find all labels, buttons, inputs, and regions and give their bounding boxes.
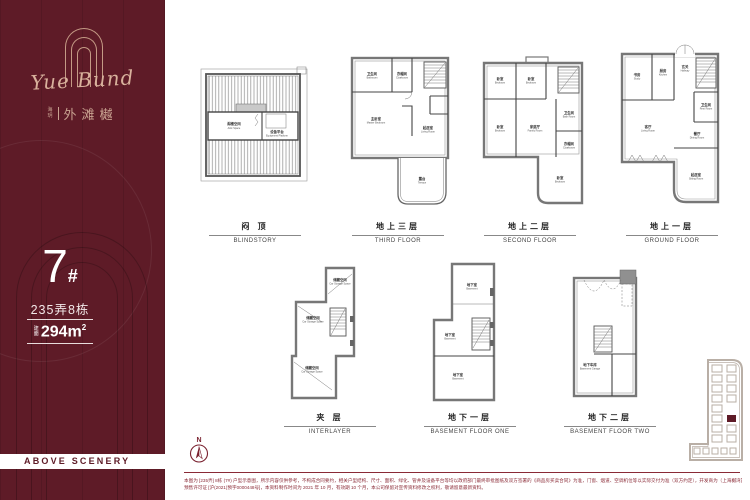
room-label-en: Basement [452,378,464,381]
floor-label-interlayer: 夹 层 INTERLAYER [270,412,390,435]
wall-nib [350,340,354,346]
plan-basement-one-drawing: 地下室 Basement 地下室 Basement 地下室 Basement [426,260,502,407]
room-label: 卧室 [557,175,564,180]
above-scenery-banner: ABOVE SCENERY [0,454,165,469]
floor-label-en: THIRD FLOOR [338,238,458,244]
room-label-en: Bedroom [495,130,505,133]
room-label: 客厅 [644,124,652,129]
room-label-en: Bedroom [526,82,536,85]
wall-nib [490,288,494,296]
unit-address: 235弄8栋 [0,299,120,318]
sidebar: Yue Bund 海 玥 外滩樾 7# 235弄8栋 建 面 294m2 ABO… [0,0,165,500]
brand-prefix-bottom: 玥 [47,114,52,120]
floor-label-en: BASEMENT FLOOR ONE [410,429,530,435]
room-label: 厨房 [660,68,667,73]
unit-number: 7# [0,242,120,290]
room-label: 储藏空间 [306,315,320,320]
room-label: 主卧室 [371,116,382,121]
label-divider [352,235,444,236]
site-key-plan [684,356,748,468]
floor-label-en: INTERLAYER [270,429,390,435]
room-label: 卫生间 [367,71,378,76]
floor-label-cn: 地下一层 [410,412,530,423]
room-label: 地下车库 [583,362,597,367]
room-label: 储藏空间 [305,365,319,370]
highlighted-building [727,415,736,422]
floor-label-en: BASEMENT FLOOR TWO [550,429,670,435]
room-label: 衣帽间 [397,71,408,76]
room-label: 衣帽间 [564,141,575,146]
compass-needle [199,447,202,459]
label-divider [484,235,576,236]
area-box: 建 面 294m2 [27,319,93,344]
floor-label-second: 地上二层 SECOND FLOOR [470,221,590,244]
room-label-en: Rest Room [700,108,713,111]
brand-name-text: 外滩樾 [64,104,118,123]
shaft-block [620,270,636,284]
brand-prefix: 海 玥 [47,108,52,119]
plan-interlayer-drawing: 储藏空间 Car Storage Space 储藏空间 Car Storage … [288,264,362,404]
floor-label-ground: 地上一层 GROUND FLOOR [612,221,732,244]
dormer [236,104,266,112]
floor-label-en: GROUND FLOOR [612,238,732,244]
floor-label-cn: 地上二层 [470,221,590,232]
room-label: 家庭厅 [530,124,541,129]
area-number: 294m [41,323,82,340]
room-label-en: Family Room [528,130,543,133]
disclaimer: 本图为 [235弄] 8栋 (7#) 户型示意图，所示内容仅供参考，不构成合同要… [184,477,742,491]
floor-label-cn: 地上一层 [612,221,732,232]
room-label: 卧室 [497,124,504,129]
room-label: 卫生间 [564,110,575,115]
room-label-en: Dining Room [690,137,704,140]
room-label: 书房 [634,72,641,77]
room-label: 起居室 [690,172,702,177]
floor-label-cn: 地上三层 [338,221,458,232]
area-exponent: 2 [82,323,86,332]
room-label: 地下室 [453,372,464,377]
room-label-en: Master Bedroom [367,122,385,125]
room-label: 卧室 [528,76,535,81]
floor-label-basement-two: 地下二层 BASEMENT FLOOR TWO [550,412,670,435]
label-divider [626,235,718,236]
area-prefix: 建 面 [34,327,39,337]
north-compass-icon: N [186,434,212,464]
room-label-en: Living Room [421,131,435,134]
floorplan-brochure: Yue Bund 海 玥 外滩樾 7# 235弄8栋 建 面 294m2 ABO… [0,0,750,500]
room-label: 设备平台 [270,129,284,134]
room-label: 卧室 [497,76,504,81]
wall-nib [350,316,354,322]
unit-number-suffix: # [68,266,78,286]
room-label-en: Study [634,78,641,81]
room-label-en: Basement [466,288,478,291]
disclaimer-line-2: 预售许可证 [沪(2021)预字0000448号]，本资料制作时间为 2021 … [184,484,742,491]
room-label-en: Attic Space [228,127,241,130]
room-label: 餐厅 [693,131,701,136]
roof-hatch-bottom [208,140,298,174]
label-divider [209,235,301,236]
brand-script-text: Yue Bund [0,64,165,97]
room-label-en: Car Storage Space [302,321,324,324]
room-label: 卫生间 [701,102,712,107]
floor-label-third: 地上三层 THIRD FLOOR [338,221,458,244]
brand-divider [58,107,59,120]
room-label-en: Bathroom [367,77,378,80]
room-label-en: Bedroom [555,181,565,184]
room-label-en: Kitchen [659,74,668,77]
room-label: 玄关 [682,64,689,69]
room-label-en: Terrace [418,182,427,185]
room-label: 起居室 [422,125,434,130]
label-divider [564,426,656,427]
brand-logo: Yue Bund 海 玥 外滩樾 [0,28,165,123]
room-label-en: Cloakroom [396,77,408,80]
room-label-en: Car Storage Space [329,283,351,286]
brand-chinese-name: 海 玥 外滩樾 [0,104,165,123]
area-prefix-bottom: 面 [34,332,39,337]
room-label: 地下室 [445,332,456,337]
compass-needle [196,447,199,459]
room-label-en: Bedroom [495,82,505,85]
room-label: 储藏空间 [333,277,347,282]
plan-third-floor-drawing: 卫生间 Bathroom 衣帽间 Cloakroom 主卧室 Master Be… [346,50,456,210]
room-label-en: Cloakroom [563,147,575,150]
area-value: 294m2 [41,323,86,341]
floor-label-cn: 闷 顶 [195,221,315,232]
room-label: 阁楼空间 [227,121,241,126]
label-divider [284,426,376,427]
room-label-en: Living Room [641,130,655,133]
room-label-en: Equipment Platform [266,135,288,138]
plan-second-floor-drawing: 卧室 Bedroom 卧室 Bedroom 卫生间 Bath Room 卧室 B… [478,53,590,211]
unit-number-value: 7 [42,240,68,292]
room-label: 露台 [419,176,426,181]
room-label-en: Basement Garage [580,368,601,371]
footer-divider [184,472,740,473]
floor-label-cn: 地下二层 [550,412,670,423]
floor-label-blindstory: 闷 顶 BLINDSTORY [195,221,315,244]
room-label-en: Car Storage Space [301,371,323,374]
plan-basement-two-drawing: 地下车库 Basement Garage [566,266,646,406]
plan-ground-floor-drawing: 书房 Study 厨房 Kitchen 玄关 Hallway 客厅 Living… [616,36,726,214]
floor-label-en: SECOND FLOOR [470,238,590,244]
compass-north-label: N [196,437,201,444]
floor-label-basement-one: 地下一层 BASEMENT FLOOR ONE [410,412,530,435]
floor-label-en: BLINDSTORY [195,238,315,244]
wall-nib [490,340,494,346]
plan-blindstory-drawing: 阁楼空间 Attic Space 设备平台 Equipment Platform [198,66,312,188]
room-label: 地下室 [467,282,478,287]
label-divider [424,426,516,427]
room-label-en: Basement [444,338,456,341]
wall-nib [490,322,494,328]
room-label-en: Sitting Room [689,178,703,181]
disclaimer-line-1: 本图为 [235弄] 8栋 (7#) 户型示意图，所示内容仅供参考，不构成合同要… [184,477,742,484]
room-label-en: Hallway [681,70,691,73]
room-label-en: Bath Room [563,116,576,119]
floor-label-cn: 夹 层 [270,412,390,423]
